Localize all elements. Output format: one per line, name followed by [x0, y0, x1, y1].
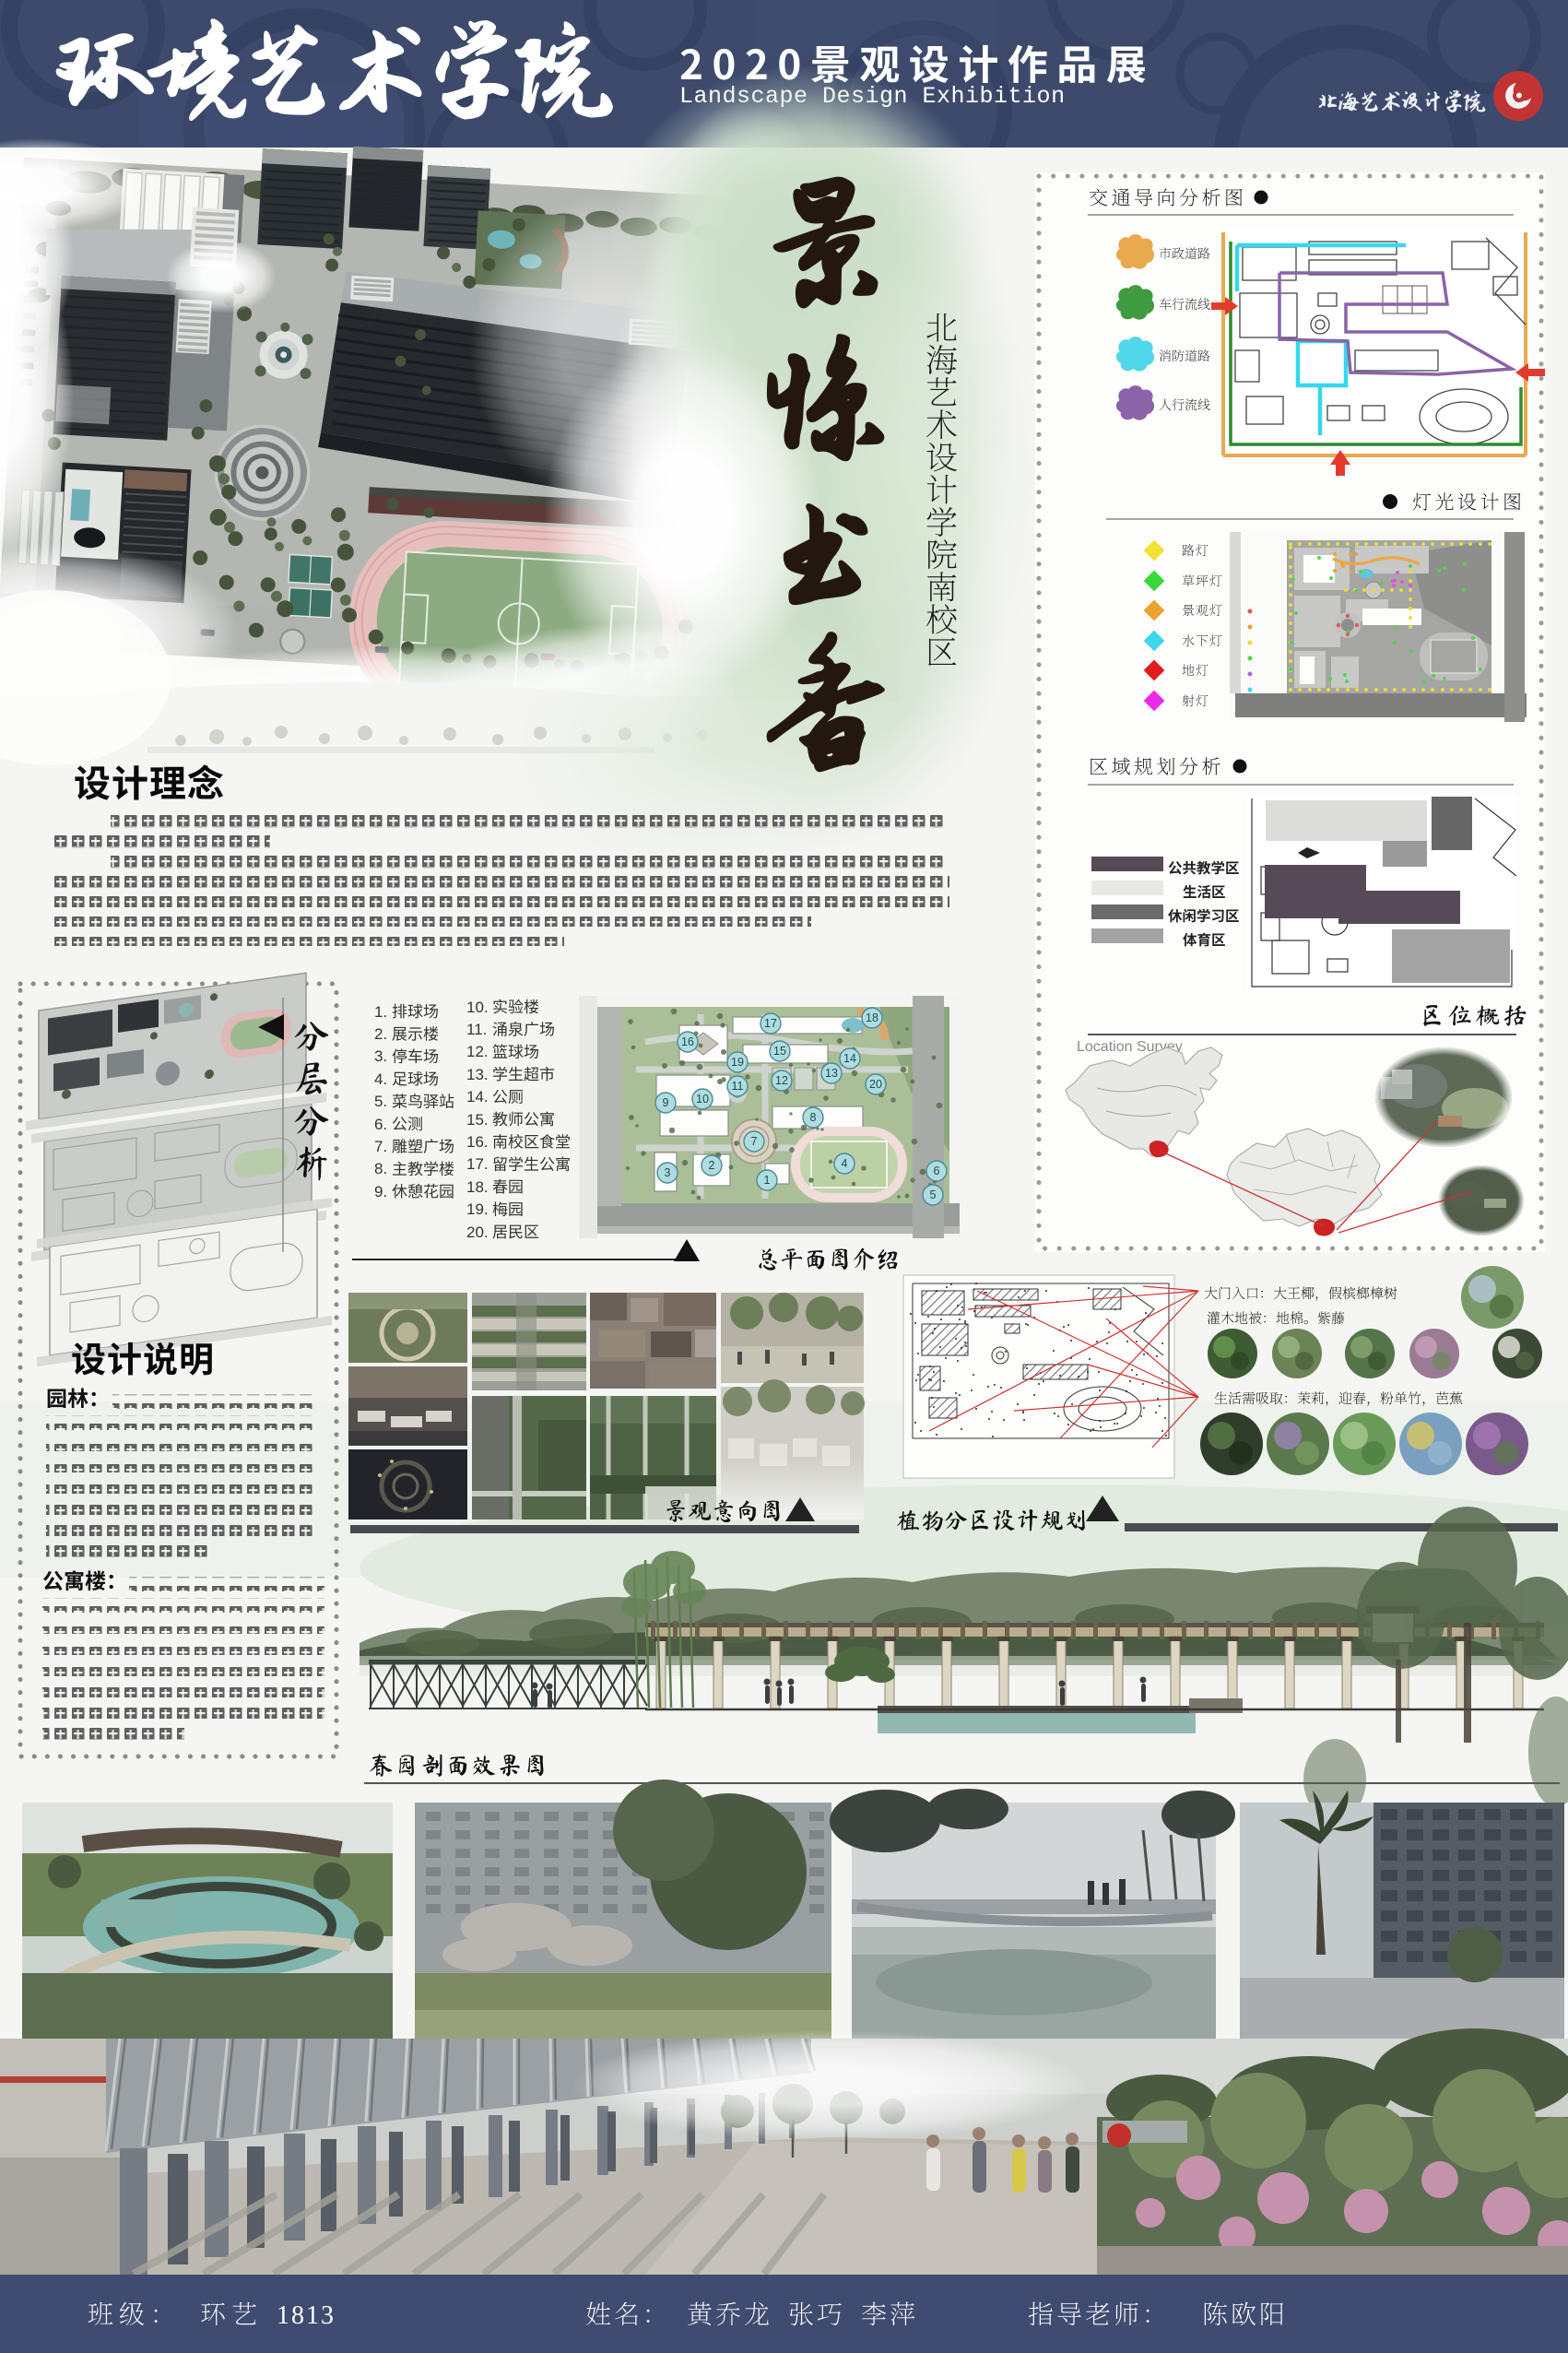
- svg-text:13.: 13.: [466, 1066, 489, 1083]
- svg-text:12: 12: [775, 1074, 788, 1087]
- svg-text:1813: 1813: [277, 2301, 336, 2330]
- svg-text:4.: 4.: [374, 1070, 387, 1088]
- svg-text:6.: 6.: [374, 1116, 387, 1133]
- svg-text:8: 8: [810, 1111, 817, 1124]
- svg-text:2.: 2.: [374, 1025, 387, 1043]
- svg-text:19: 19: [731, 1056, 744, 1069]
- svg-text:15.: 15.: [466, 1111, 489, 1129]
- svg-text:3: 3: [665, 1166, 671, 1179]
- svg-text:12.: 12.: [466, 1043, 489, 1060]
- svg-text:20.: 20.: [466, 1224, 489, 1241]
- svg-text:16: 16: [681, 1035, 694, 1048]
- svg-text:1: 1: [764, 1174, 771, 1187]
- svg-text:19.: 19.: [466, 1200, 489, 1218]
- svg-text:6: 6: [934, 1165, 940, 1177]
- svg-text:5: 5: [930, 1188, 937, 1201]
- svg-text:4: 4: [842, 1157, 848, 1170]
- svg-text:7: 7: [751, 1135, 758, 1148]
- svg-text:15: 15: [773, 1045, 786, 1058]
- svg-text:11.: 11.: [466, 1021, 487, 1038]
- svg-text:16.: 16.: [466, 1133, 489, 1151]
- svg-text:11: 11: [732, 1080, 744, 1093]
- svg-text:14: 14: [843, 1052, 856, 1065]
- svg-text:9.: 9.: [374, 1183, 387, 1200]
- svg-text:17: 17: [764, 1017, 777, 1030]
- svg-text:18: 18: [866, 1011, 878, 1024]
- svg-text:13: 13: [825, 1067, 838, 1080]
- svg-text:18.: 18.: [466, 1178, 489, 1196]
- svg-text:2: 2: [709, 1159, 715, 1172]
- svg-text:10: 10: [696, 1093, 709, 1106]
- svg-text:8.: 8.: [374, 1160, 387, 1177]
- svg-text:7.: 7.: [374, 1138, 387, 1155]
- svg-text:3.: 3.: [374, 1047, 387, 1065]
- svg-text:1.: 1.: [374, 1003, 387, 1021]
- svg-text:20: 20: [869, 1078, 882, 1091]
- svg-text:14.: 14.: [466, 1088, 489, 1106]
- svg-text:10.: 10.: [466, 999, 489, 1016]
- svg-text:5.: 5.: [374, 1093, 387, 1110]
- svg-text:9: 9: [663, 1096, 669, 1109]
- svg-text:17.: 17.: [466, 1155, 489, 1173]
